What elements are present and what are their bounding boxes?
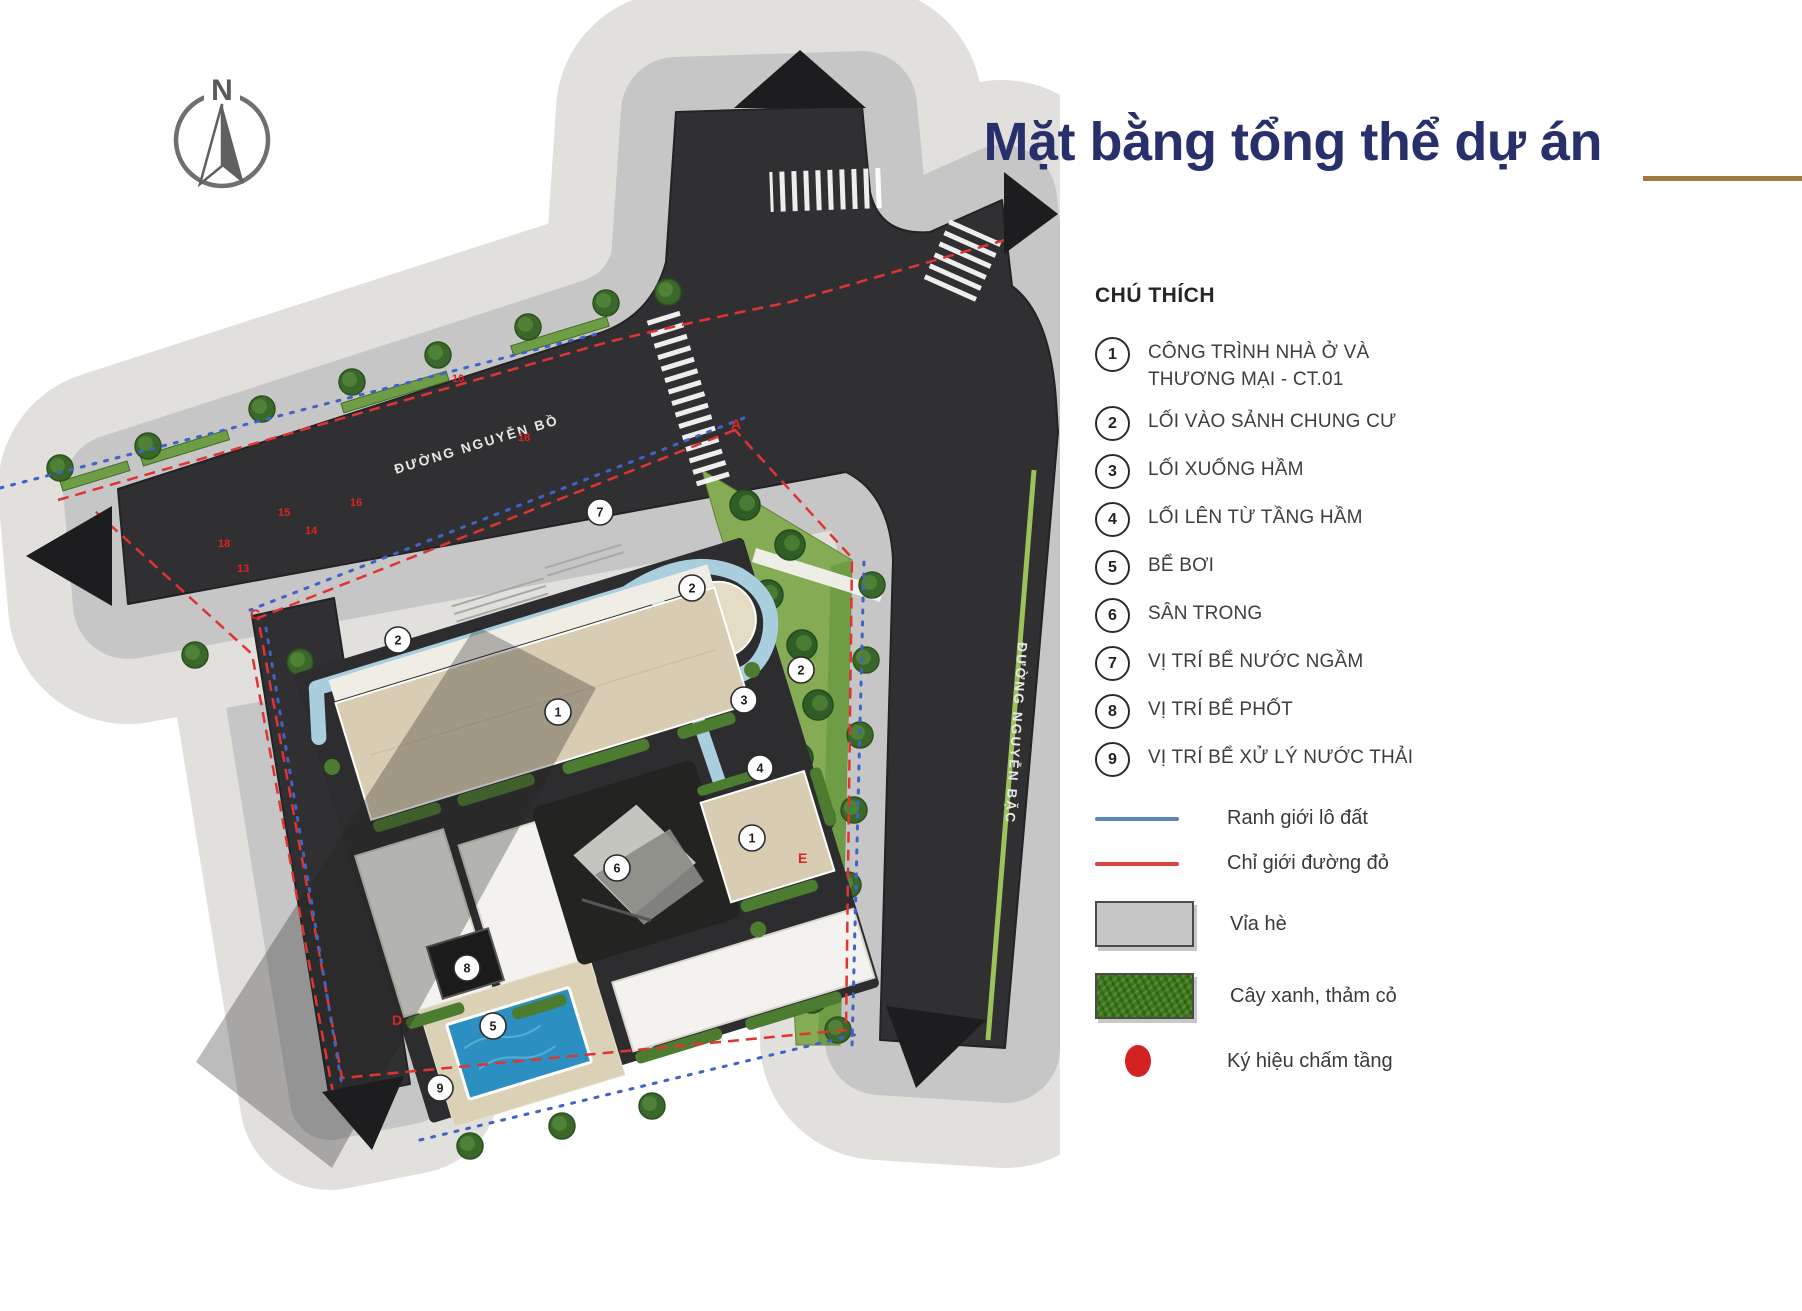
marker-septic-tank: 8 xyxy=(454,955,480,981)
legend-number-badge: 3 xyxy=(1095,454,1130,489)
legend-item-label: CÔNG TRÌNH NHÀ Ở VÀ THƯƠNG MẠI - CT.01 xyxy=(1148,336,1369,393)
svg-text:6: 6 xyxy=(614,862,621,876)
legend-symbol-lot-boundary: Ranh giới lô đất xyxy=(1095,807,1775,830)
legend-symbol-floor-dot: Ký hiệu chấm tầng xyxy=(1095,1045,1775,1077)
svg-text:13: 13 xyxy=(237,563,249,575)
svg-text:15: 15 xyxy=(278,507,290,519)
legend-item-3: 3 LỐI XUỐNG HẦM xyxy=(1095,453,1775,489)
legend-item-label: LỐI LÊN TỪ TẦNG HẦM xyxy=(1148,501,1363,532)
legend-number-badge: 6 xyxy=(1095,598,1130,633)
svg-text:1: 1 xyxy=(555,706,562,720)
site-plan-map: ĐƯỜNG NGUYỄN BỒ ĐƯỜNG NGUYỄN BẶC xyxy=(0,0,1060,1311)
marker-courtyard: 6 xyxy=(604,855,630,881)
svg-text:D: D xyxy=(392,1012,402,1028)
legend-item-label: SÂN TRONG xyxy=(1148,597,1262,628)
legend-item-6: 6 SÂN TRONG xyxy=(1095,597,1775,633)
svg-text:3: 3 xyxy=(741,694,748,708)
svg-text:16: 16 xyxy=(350,497,362,509)
svg-text:18: 18 xyxy=(218,538,230,550)
marker-lobby-entrance: 2 xyxy=(679,575,705,601)
svg-text:5: 5 xyxy=(490,1020,497,1034)
legend-number-badge: 7 xyxy=(1095,646,1130,681)
svg-text:8: 8 xyxy=(464,962,471,976)
legend-symbol-label: Ranh giới lô đất xyxy=(1227,807,1368,830)
svg-text:2: 2 xyxy=(798,664,805,678)
page-title: Mặt bằng tổng thể dự án xyxy=(962,110,1602,175)
legend-item-4: 4 LỐI LÊN TỪ TẦNG HẦM xyxy=(1095,501,1775,537)
legend-panel: CHÚ THÍCH 1 CÔNG TRÌNH NHÀ Ở VÀ THƯƠNG M… xyxy=(1095,284,1775,1097)
marker-wastewater: 9 xyxy=(427,1075,453,1101)
red-dot-symbol xyxy=(1125,1045,1151,1077)
legend-item-label: VỊ TRÍ BỂ PHỐT xyxy=(1148,693,1293,724)
svg-text:4: 4 xyxy=(757,762,764,776)
svg-text:E: E xyxy=(798,850,807,866)
marker-basement-down: 3 xyxy=(731,687,757,713)
marker-lobby-entrance: 2 xyxy=(385,627,411,653)
svg-text:10: 10 xyxy=(452,373,464,385)
compass-n-label: N xyxy=(211,74,233,107)
sidewalk-swatch xyxy=(1095,901,1194,947)
legend-item-label: LỐI VÀO SẢNH CHUNG CƯ xyxy=(1148,405,1396,436)
legend-symbol-label: Ký hiệu chấm tầng xyxy=(1227,1050,1393,1073)
svg-text:2: 2 xyxy=(395,634,402,648)
legend-item-8: 8 VỊ TRÍ BỂ PHỐT xyxy=(1095,693,1775,729)
svg-text:14: 14 xyxy=(305,525,318,537)
legend-item-label: LỐI XUỐNG HẦM xyxy=(1148,453,1304,484)
marker-pool: 5 xyxy=(480,1013,506,1039)
legend-item-7: 7 VỊ TRÍ BỂ NƯỚC NGẦM xyxy=(1095,645,1775,681)
legend-number-badge: 4 xyxy=(1095,502,1130,537)
legend-item-label: BỂ BƠI xyxy=(1148,549,1214,580)
legend-symbol-sidewalk: Vỉa hè xyxy=(1095,901,1775,947)
legend-item-1: 1 CÔNG TRÌNH NHÀ Ở VÀ THƯƠNG MẠI - CT.01 xyxy=(1095,336,1775,393)
legend-title: CHÚ THÍCH xyxy=(1095,284,1775,308)
marker-water-tank: 7 xyxy=(587,499,613,525)
svg-text:1: 1 xyxy=(749,832,756,846)
marker-building: 1 xyxy=(545,699,571,725)
legend-symbol-red-line: Chỉ giới đường đỏ xyxy=(1095,852,1775,875)
legend-symbol-label: Cây xanh, thảm cỏ xyxy=(1230,985,1397,1008)
svg-text:2: 2 xyxy=(689,582,696,596)
legend-item-5: 5 BỂ BƠI xyxy=(1095,549,1775,585)
marker-building: 1 xyxy=(739,825,765,851)
legend-number-badge: 8 xyxy=(1095,694,1130,729)
svg-text:A: A xyxy=(731,416,741,432)
legend-symbol-label: Vỉa hè xyxy=(1230,913,1287,936)
svg-text:7: 7 xyxy=(597,506,604,520)
svg-text:C: C xyxy=(250,606,260,622)
legend-symbol-label: Chỉ giới đường đỏ xyxy=(1227,852,1389,875)
blue-line-symbol xyxy=(1095,817,1179,821)
marker-basement-up: 4 xyxy=(747,755,773,781)
legend-number-badge: 2 xyxy=(1095,406,1130,441)
title-accent-rule xyxy=(1643,176,1802,181)
marker-lobby-entrance: 2 xyxy=(788,657,814,683)
svg-text:18: 18 xyxy=(518,432,530,444)
legend-number-badge: 9 xyxy=(1095,742,1130,777)
legend-item-2: 2 LỐI VÀO SẢNH CHUNG CƯ xyxy=(1095,405,1775,441)
svg-text:9: 9 xyxy=(437,1082,444,1096)
legend-symbol-greenery: Cây xanh, thảm cỏ xyxy=(1095,973,1775,1019)
greenery-swatch xyxy=(1095,973,1194,1019)
legend-number-badge: 5 xyxy=(1095,550,1130,585)
legend-item-label: VỊ TRÍ BỂ NƯỚC NGẦM xyxy=(1148,645,1363,676)
north-compass: N xyxy=(176,74,268,186)
legend-item-label: VỊ TRÍ BỂ XỬ LÝ NƯỚC THẢI xyxy=(1148,741,1413,772)
legend-symbols: Ranh giới lô đất Chỉ giới đường đỏ Vỉa h… xyxy=(1095,807,1775,1077)
legend-number-badge: 1 xyxy=(1095,337,1130,372)
page: ĐƯỜNG NGUYỄN BỒ ĐƯỜNG NGUYỄN BẶC xyxy=(0,0,1802,1311)
legend-item-9: 9 VỊ TRÍ BỂ XỬ LÝ NƯỚC THẢI xyxy=(1095,741,1775,777)
red-line-symbol xyxy=(1095,862,1179,866)
